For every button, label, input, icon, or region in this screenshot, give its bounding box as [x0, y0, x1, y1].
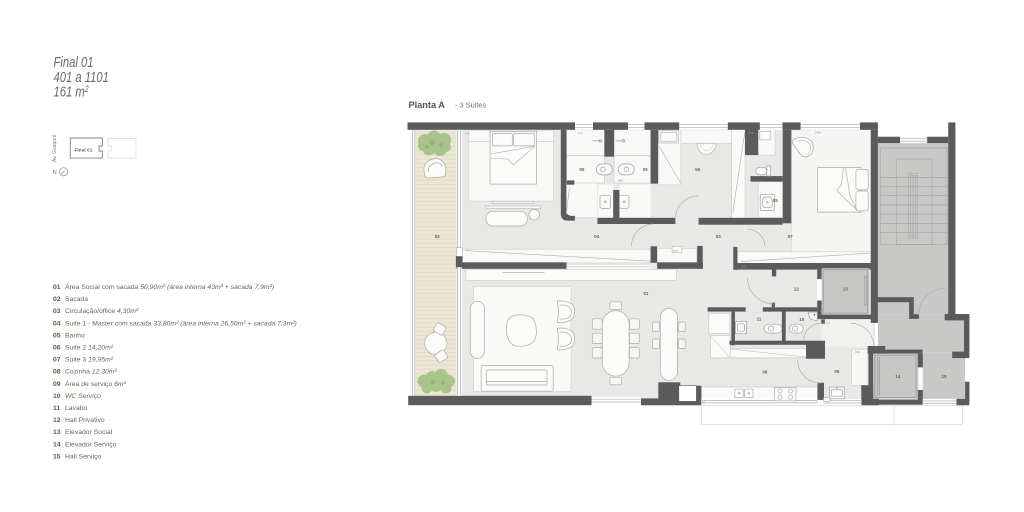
svg-text:150: 150 [741, 265, 746, 269]
svg-text:750: 750 [673, 249, 678, 253]
svg-text:11: 11 [757, 317, 762, 322]
svg-text:09: 09 [53, 381, 61, 388]
svg-text:WC Serviço: WC Serviço [65, 393, 101, 400]
svg-text:Elevador Social: Elevador Social [65, 429, 113, 436]
svg-text:- 3 Suites: - 3 Suites [455, 101, 487, 110]
svg-text:05: 05 [53, 332, 61, 339]
svg-text:07: 07 [53, 357, 61, 364]
svg-text:Elevador Serviço: Elevador Serviço [65, 441, 117, 448]
svg-text:05: 05 [643, 167, 649, 172]
svg-text:240: 240 [749, 131, 754, 135]
svg-text:11: 11 [53, 405, 60, 412]
svg-text:15: 15 [941, 374, 947, 379]
svg-text:Planta A: Planta A [409, 100, 446, 110]
svg-text:Av. Guaporé: Av. Guaporé [52, 134, 58, 162]
svg-text:03: 03 [53, 308, 61, 315]
svg-text:2400: 2400 [815, 131, 822, 135]
svg-text:161 m2: 161 m2 [54, 83, 89, 100]
svg-text:345: 345 [465, 132, 470, 136]
svg-text:150: 150 [855, 350, 860, 354]
svg-text:06: 06 [695, 167, 701, 172]
svg-text:15: 15 [53, 453, 61, 460]
svg-text:01: 01 [643, 291, 649, 296]
svg-text:08: 08 [762, 370, 768, 375]
svg-text:Banho: Banho [65, 332, 85, 339]
svg-text:13: 13 [53, 429, 61, 436]
svg-text:N: N [53, 170, 57, 176]
svg-text:05: 05 [773, 198, 779, 203]
svg-text:05: 05 [579, 167, 585, 172]
svg-text:480: 480 [618, 179, 623, 183]
svg-text:480: 480 [700, 401, 705, 405]
svg-text:Área de serviço 6m²: Área de serviço 6m² [65, 379, 127, 388]
svg-text:14: 14 [53, 441, 61, 448]
svg-text:06: 06 [53, 345, 61, 352]
svg-text:01: 01 [53, 284, 61, 291]
svg-text:170: 170 [825, 322, 830, 326]
svg-text:07: 07 [788, 234, 794, 239]
svg-text:08: 08 [53, 369, 61, 376]
svg-text:Suite 3 19,95m²: Suite 3 19,95m² [65, 357, 114, 364]
svg-text:04: 04 [594, 234, 600, 239]
svg-text:12: 12 [794, 286, 800, 291]
svg-text:10: 10 [53, 393, 61, 400]
svg-text:135: 135 [578, 131, 583, 135]
svg-text:Cozinha 12,30m²: Cozinha 12,30m² [65, 369, 117, 376]
svg-text:03: 03 [716, 234, 722, 239]
svg-text:12: 12 [53, 417, 61, 424]
svg-text:Suite 1 - Master com sacada 33: Suite 1 - Master com sacada 33,80m² (áre… [65, 320, 297, 327]
svg-text:Hall Privativo: Hall Privativo [65, 417, 105, 424]
svg-text:02: 02 [435, 234, 441, 239]
svg-text:Final 01: Final 01 [75, 147, 93, 153]
svg-text:Hall Serviço: Hall Serviço [65, 453, 101, 460]
svg-text:Circulação/office 4,30m²: Circulação/office 4,30m² [65, 308, 139, 315]
svg-text:10: 10 [799, 317, 805, 322]
svg-text:02: 02 [53, 296, 61, 303]
svg-text:04: 04 [53, 320, 61, 327]
svg-text:13: 13 [843, 286, 849, 291]
svg-text:09: 09 [834, 369, 840, 374]
svg-text:Sacada: Sacada [65, 296, 88, 303]
svg-text:Lavabo: Lavabo [65, 405, 88, 412]
svg-text:Área Social com sacada 50,90m²: Área Social com sacada 50,90m² (área int… [65, 282, 274, 291]
svg-text:Suite 2 14,20m²: Suite 2 14,20m² [65, 345, 114, 352]
svg-text:14: 14 [895, 374, 901, 379]
